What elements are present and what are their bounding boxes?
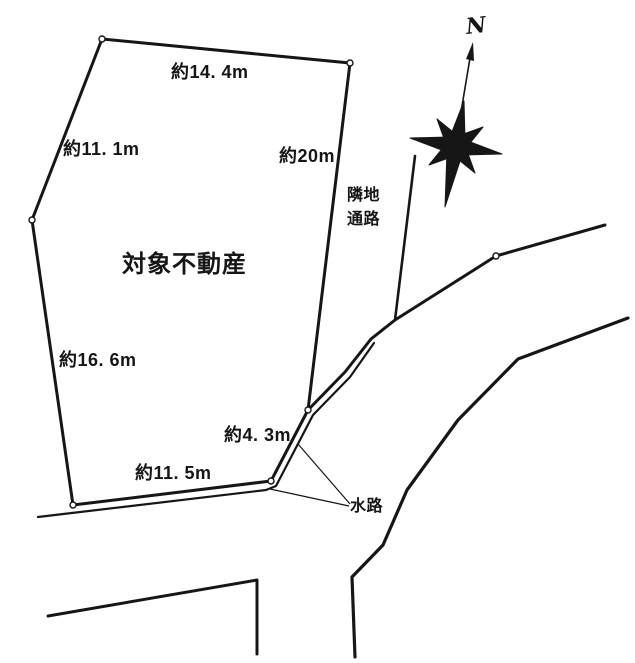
vertex-marker <box>347 60 353 66</box>
label-edge-bottom: 約11. 5m <box>135 464 212 482</box>
label-neighbor-path-line2: 通路 <box>347 208 380 232</box>
label-edge-top: 約14. 4m <box>171 63 249 81</box>
label-edge-left: 約16. 6m <box>59 351 137 369</box>
vertex-marker <box>70 502 76 508</box>
vertex-marker <box>493 253 499 259</box>
neighbor-path-line <box>395 156 415 320</box>
label-edge-right: 約20m <box>279 147 335 165</box>
label-edge-lower-right: 約4. 3m <box>224 426 291 444</box>
vertex-marker <box>268 478 274 484</box>
north-letter: N <box>465 14 487 38</box>
road-lower-boundary <box>352 318 628 657</box>
vertex-marker <box>99 36 105 42</box>
compass-rose <box>410 42 502 207</box>
label-property-title: 対象不動産 <box>122 253 247 277</box>
waterway-pointer-upper <box>298 444 350 504</box>
label-neighbor-path-line1: 隣地 <box>347 184 380 208</box>
waterway-pointer-lower <box>270 489 349 506</box>
road-upper-boundary <box>308 225 605 410</box>
vertex-marker <box>305 407 311 413</box>
west-road-boundary <box>48 580 257 654</box>
compass-arrow-head <box>466 42 474 61</box>
vertex-marker <box>29 217 35 223</box>
label-waterway: 水路 <box>350 499 383 515</box>
label-edge-upper-left: 約11. 1m <box>63 140 140 158</box>
land-survey-diagram: 約14. 4m 約11. 1m 約20m 隣地 通路 対象不動産 約16. 6m… <box>0 0 635 663</box>
diagram-canvas <box>0 0 635 663</box>
label-neighbor-path: 隣地 通路 <box>347 184 380 232</box>
